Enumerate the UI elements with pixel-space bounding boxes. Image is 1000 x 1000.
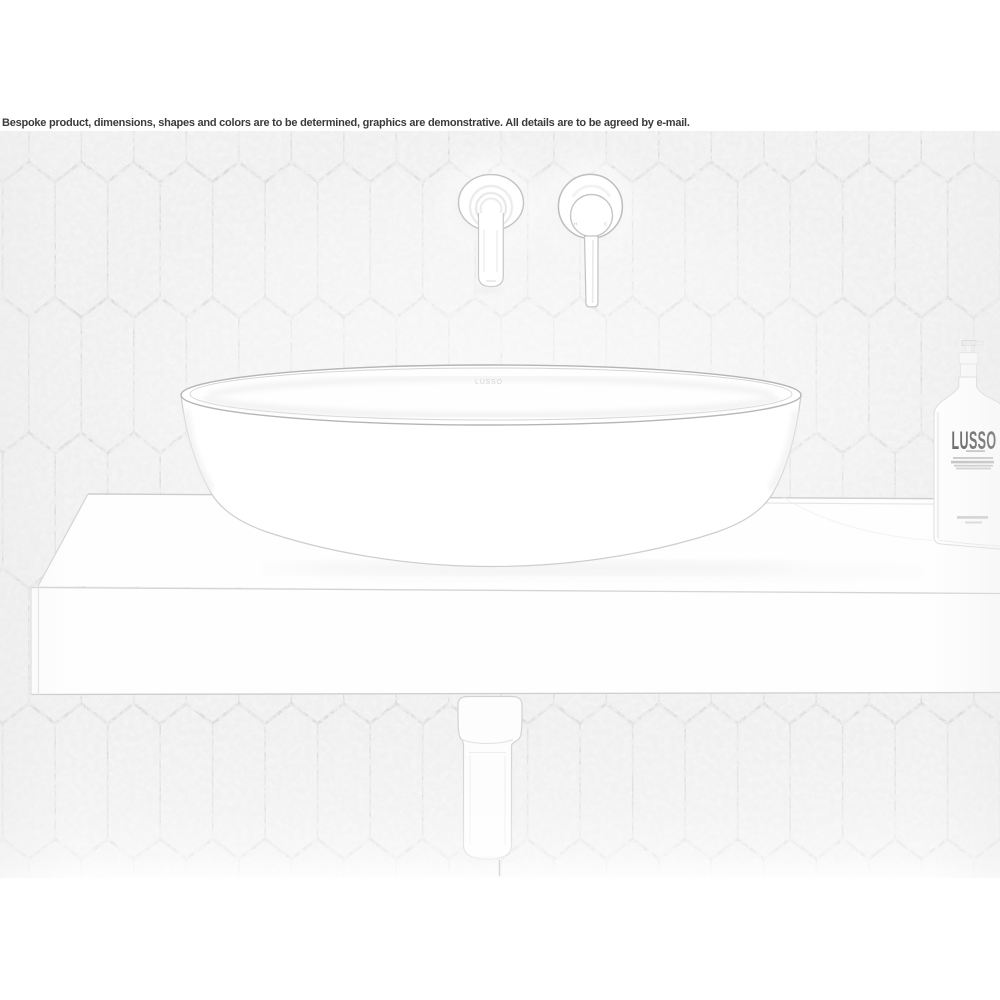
svg-text:H: H	[574, 221, 577, 226]
svg-text:LUSSO: LUSSO	[475, 379, 503, 386]
